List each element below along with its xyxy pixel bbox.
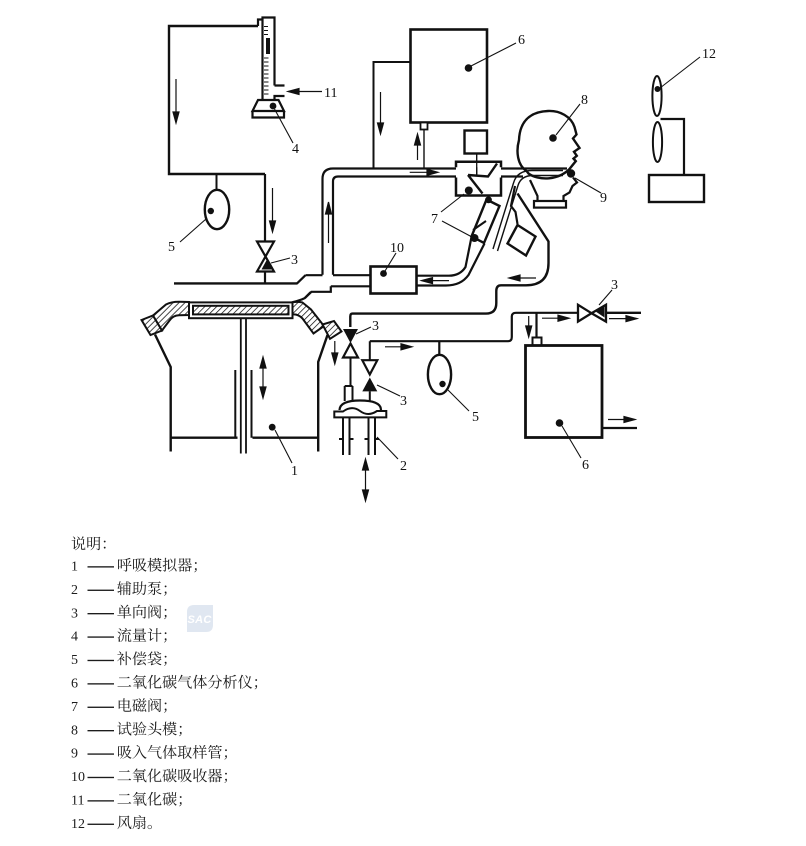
svg-text:1: 1 xyxy=(71,560,78,575)
svg-text:5: 5 xyxy=(472,410,479,425)
svg-text:9: 9 xyxy=(600,191,607,206)
svg-text:10: 10 xyxy=(390,241,404,256)
svg-text:12: 12 xyxy=(71,817,85,832)
svg-text:3: 3 xyxy=(291,253,298,268)
svg-text:3: 3 xyxy=(71,606,78,621)
svg-text:1: 1 xyxy=(291,464,298,479)
svg-text:10: 10 xyxy=(71,770,85,785)
svg-text:4: 4 xyxy=(292,142,299,157)
svg-text:6: 6 xyxy=(582,458,589,473)
svg-text:6: 6 xyxy=(518,33,525,48)
svg-text:11: 11 xyxy=(71,794,84,809)
svg-text:5: 5 xyxy=(168,240,175,255)
svg-text:2: 2 xyxy=(71,583,78,598)
svg-text:4: 4 xyxy=(71,630,78,645)
svg-text:SAC: SAC xyxy=(188,614,213,626)
svg-text:12: 12 xyxy=(702,47,716,62)
svg-text:3: 3 xyxy=(611,278,618,293)
svg-text:3: 3 xyxy=(400,394,407,409)
svg-text:5: 5 xyxy=(71,653,78,668)
svg-text:11: 11 xyxy=(324,86,337,101)
svg-text:9: 9 xyxy=(71,747,78,762)
svg-text:3: 3 xyxy=(372,319,379,334)
svg-text:6: 6 xyxy=(71,677,78,692)
svg-text:8: 8 xyxy=(71,723,78,738)
svg-text:7: 7 xyxy=(431,212,438,227)
svg-text:7: 7 xyxy=(71,700,78,715)
svg-text:8: 8 xyxy=(581,93,588,108)
svg-text:2: 2 xyxy=(400,459,407,474)
